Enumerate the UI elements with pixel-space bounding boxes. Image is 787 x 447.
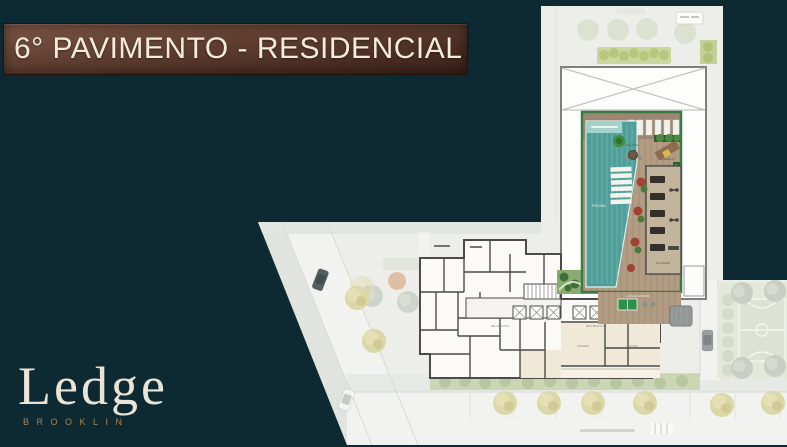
unit-balcony-label-2: VARANDA [626, 344, 639, 348]
sports-court [718, 280, 787, 379]
hall-label-2: HALL BLOCO 2 [491, 324, 510, 328]
fire-pit [629, 151, 638, 160]
floor-banner: 6° PAVIMENTO - RESIDENCIAL [3, 23, 468, 75]
gym-label: ACADEMIA [656, 261, 671, 265]
brand-name: Ledge [18, 358, 168, 415]
external-lounge: LOUNGE EXTERNO [598, 292, 692, 326]
entry-marker [616, 8, 646, 15]
street-name-text [580, 429, 635, 432]
unit-balcony-label-1: VARANDA [577, 344, 590, 348]
gym: ACADEMIA [646, 166, 681, 274]
lounge-label: LOUNGE EXTERNO [626, 294, 650, 298]
solarium-label: SOLÁRIO [625, 143, 639, 147]
brand-logo: Ledge BROOKLIN [18, 358, 168, 427]
pool-deck: PISCINA SOLÁRIO PARRILLA [582, 112, 681, 292]
staircase [524, 284, 560, 299]
pool-label: PISCINA [592, 204, 606, 208]
elevator-core [513, 306, 603, 319]
brand-subtitle: BROOKLIN [18, 417, 168, 427]
page-title: 6° PAVIMENTO - RESIDENCIAL [4, 32, 462, 66]
parrilla-label: PARRILLA [660, 157, 673, 161]
north-badge [676, 12, 703, 24]
crosswalk [651, 423, 673, 434]
hall-label-1: HALL BLOCO 1 [586, 324, 605, 328]
